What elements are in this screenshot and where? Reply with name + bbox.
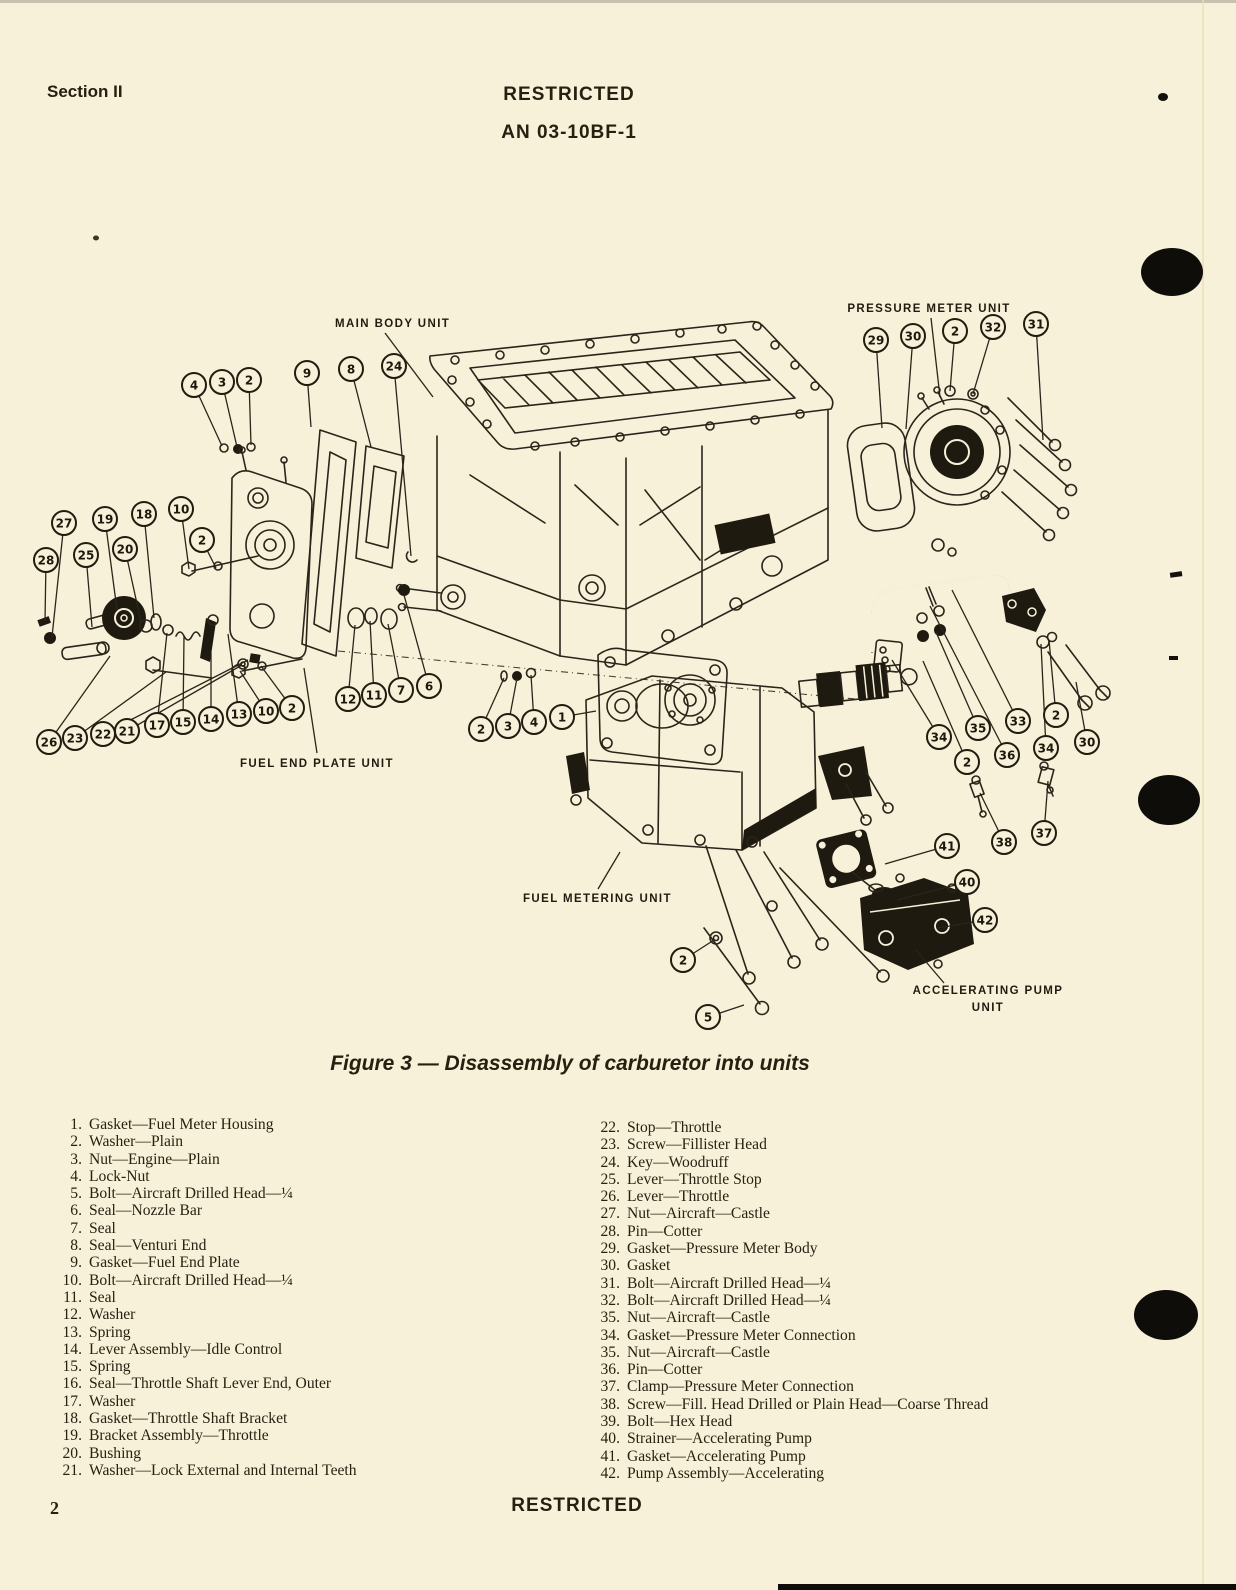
callout-number: 41: [939, 840, 956, 854]
callout-number: 42: [977, 914, 994, 928]
part-number: 36.: [566, 1361, 627, 1378]
callout-number: 2: [198, 534, 206, 548]
part-number: 4.: [45, 1168, 89, 1185]
callout-number: 33: [1010, 715, 1027, 729]
parts-list-item: 13.Spring: [45, 1324, 357, 1341]
part-number: 28.: [566, 1223, 627, 1240]
parts-list-item: 3.Nut—Engine—Plain: [45, 1151, 357, 1168]
callout-number: 5: [704, 1011, 712, 1025]
callout-2: 2: [1044, 640, 1068, 727]
page-number: 2: [50, 1498, 59, 1519]
callout-number: 27: [56, 517, 73, 531]
callout-number: 22: [95, 728, 112, 742]
parts-list-item: 25.Lever—Throttle Stop: [566, 1171, 988, 1188]
callout-number: 7: [397, 684, 405, 698]
callout-2: 2: [190, 528, 216, 568]
callout-14: 14: [199, 652, 223, 731]
callout-number: 21: [119, 725, 136, 739]
callout-32: 32: [973, 315, 1005, 394]
parts-list-item: 24.Key—Woodruff: [566, 1154, 988, 1171]
part-text: Gasket—Fuel End Plate: [89, 1254, 240, 1271]
parts-list-item: 28.Pin—Cotter: [566, 1223, 988, 1240]
callout-number: 30: [1079, 736, 1096, 750]
parts-list-item: 42.Pump Assembly—Accelerating: [566, 1465, 988, 1482]
parts-list-item: 8.Seal—Venturi End: [45, 1237, 357, 1254]
callout-number: 24: [386, 360, 403, 374]
callout-9: 9: [295, 361, 319, 427]
callout-number: 26: [41, 736, 58, 750]
parts-list-item: 17.Washer: [45, 1393, 357, 1410]
callout-number: 20: [117, 543, 134, 557]
part-number: 31.: [566, 1275, 627, 1292]
svg-text:FUEL METERING UNIT: FUEL METERING UNIT: [523, 893, 672, 905]
part-text: Spring: [89, 1324, 131, 1341]
part-number: 6.: [45, 1202, 89, 1219]
part-number: 35.: [566, 1309, 627, 1326]
parts-list-item: 6.Seal—Nozzle Bar: [45, 1202, 357, 1219]
restricted-banner-bottom: RESTRICTED: [511, 1495, 642, 1517]
parts-list-item: 5.Bolt—Aircraft Drilled Head—¼: [45, 1185, 357, 1202]
part-text: Washer: [89, 1393, 135, 1410]
part-number: 14.: [45, 1341, 89, 1358]
part-number: 26.: [566, 1188, 627, 1205]
callout-number: 19: [97, 513, 114, 527]
callout-number: 2: [245, 374, 253, 388]
part-text: Seal: [89, 1220, 116, 1237]
callout-number: 4: [190, 379, 198, 393]
parts-list-item: 7.Seal: [45, 1220, 357, 1237]
part-number: 15.: [45, 1358, 89, 1375]
parts-list-item: 30.Gasket: [566, 1257, 988, 1274]
part-text: Stop—Throttle: [627, 1119, 721, 1136]
callout-number: 10: [258, 705, 275, 719]
callout-number: 15: [175, 716, 192, 730]
part-text: Nut—Engine—Plain: [89, 1151, 220, 1168]
part-text: Bracket Assembly—Throttle: [89, 1427, 269, 1444]
part-number: 38.: [566, 1396, 627, 1413]
part-number: 9.: [45, 1254, 89, 1271]
callout-number: 12: [340, 693, 357, 707]
parts-list-item: 19.Bracket Assembly—Throttle: [45, 1427, 357, 1444]
parts-list-item: 41.Gasket—Accelerating Pump: [566, 1448, 988, 1465]
part-text: Washer—Lock External and Internal Teeth: [89, 1462, 357, 1479]
callout-11: 11: [362, 621, 386, 707]
callout-number: 32: [985, 321, 1002, 335]
parts-list-item: 36.Pin—Cotter: [566, 1361, 988, 1378]
callout-number: 2: [679, 954, 687, 968]
part-text: Washer—Plain: [89, 1133, 183, 1150]
part-number: 34.: [566, 1327, 627, 1344]
parts-list-item: 4.Lock-Nut: [45, 1168, 357, 1185]
callout-number: 38: [996, 836, 1013, 850]
part-number: 18.: [45, 1410, 89, 1427]
figure-caption: Figure 3 — Disassembly of carburetor int…: [330, 1052, 810, 1076]
callout-3: 3: [210, 370, 237, 447]
callout-8: 8: [339, 357, 371, 447]
part-text: Washer: [89, 1306, 135, 1323]
part-number: 8.: [45, 1237, 89, 1254]
part-number: 25.: [566, 1171, 627, 1188]
part-text: Seal—Nozzle Bar: [89, 1202, 202, 1219]
parts-list-item: 26.Lever—Throttle: [566, 1188, 988, 1205]
parts-list-item: 27.Nut—Aircraft—Castle: [566, 1205, 988, 1222]
callout-number: 29: [868, 334, 885, 348]
callout-number: 28: [38, 554, 55, 568]
parts-list-item: 29.Gasket—Pressure Meter Body: [566, 1240, 988, 1257]
binding-hole: [1138, 775, 1200, 825]
callout-number: 34: [931, 731, 948, 745]
part-text: Gasket—Pressure Meter Body: [627, 1240, 818, 1257]
parts-list-item: 20.Bushing: [45, 1445, 357, 1462]
part-text: Bolt—Aircraft Drilled Head—¼: [627, 1275, 831, 1292]
part-text: Gasket: [627, 1257, 670, 1274]
part-number: 41.: [566, 1448, 627, 1465]
fuel-metering-unit-art: [566, 648, 919, 1014]
callout-number: 13: [231, 708, 248, 722]
part-text: Gasket—Pressure Meter Connection: [627, 1327, 856, 1344]
callout-number: 40: [959, 876, 976, 890]
part-number: 17.: [45, 1393, 89, 1410]
part-number: 10.: [45, 1272, 89, 1289]
callout-number: 34: [1038, 742, 1055, 756]
part-number: 37.: [566, 1378, 627, 1395]
callout-2: 2: [237, 368, 261, 445]
callout-15: 15: [171, 636, 195, 734]
callout-number: 3: [218, 376, 226, 390]
svg-text:PRESSURE METER UNIT: PRESSURE METER UNIT: [847, 303, 1010, 315]
part-number: 3.: [45, 1151, 89, 1168]
part-number: 20.: [45, 1445, 89, 1462]
part-text: Pin—Cotter: [627, 1361, 702, 1378]
part-text: Nut—Aircraft—Castle: [627, 1205, 770, 1222]
part-number: 13.: [45, 1324, 89, 1341]
part-number: 35.: [566, 1344, 627, 1361]
callout-number: 11: [366, 689, 383, 703]
part-text: Nut—Aircraft—Castle: [627, 1309, 770, 1326]
callout-number: 25: [78, 549, 95, 563]
parts-list-item: 18.Gasket—Throttle Shaft Bracket: [45, 1410, 357, 1427]
parts-list-item: 21.Washer—Lock External and Internal Tee…: [45, 1462, 357, 1479]
part-text: Seal: [89, 1289, 116, 1306]
part-text: Lever—Throttle Stop: [627, 1171, 762, 1188]
callout-41: 41: [885, 834, 959, 864]
part-text: Bolt—Hex Head: [627, 1413, 732, 1430]
callout-number: 2: [1052, 709, 1060, 723]
part-text: Seal—Venturi End: [89, 1237, 206, 1254]
parts-list-item: 1.Gasket—Fuel Meter Housing: [45, 1116, 357, 1133]
callout-number: 4: [530, 716, 538, 730]
part-text: Clamp—Pressure Meter Connection: [627, 1378, 854, 1395]
part-text: Lever—Throttle: [627, 1188, 729, 1205]
binding-hole: [1134, 1290, 1198, 1340]
callout-number: 3: [504, 720, 512, 734]
part-number: 16.: [45, 1375, 89, 1392]
svg-text:FUEL END PLATE UNIT: FUEL END PLATE UNIT: [240, 758, 394, 770]
parts-list-item: 9.Gasket—Fuel End Plate: [45, 1254, 357, 1271]
part-text: Bolt—Aircraft Drilled Head—¼: [627, 1292, 831, 1309]
parts-list-item: 35.Nut—Aircraft—Castle: [566, 1344, 988, 1361]
part-text: Nut—Aircraft—Castle: [627, 1344, 770, 1361]
svg-text:ACCELERATING PUMP: ACCELERATING PUMP: [913, 985, 1064, 997]
callout-13: 13: [227, 634, 251, 726]
unit-label: FUEL METERING UNIT: [523, 852, 672, 905]
part-number: 27.: [566, 1205, 627, 1222]
parts-list-item: 40.Strainer—Accelerating Pump: [566, 1430, 988, 1447]
callout-number: 1: [558, 711, 566, 725]
callout-31: 31: [1024, 312, 1048, 440]
parts-list-left-column: 1.Gasket—Fuel Meter Housing2.Washer—Plai…: [45, 1116, 357, 1479]
part-text: Lever Assembly—Idle Control: [89, 1341, 282, 1358]
parts-list-item: 32.Bolt—Aircraft Drilled Head—¼: [566, 1292, 988, 1309]
parts-list-item: 11.Seal: [45, 1289, 357, 1306]
part-number: 30.: [566, 1257, 627, 1274]
part-number: 7.: [45, 1220, 89, 1237]
part-number: 21.: [45, 1462, 89, 1479]
callout-number: 6: [425, 680, 433, 694]
part-text: Key—Woodruff: [627, 1154, 729, 1171]
part-text: Gasket—Throttle Shaft Bracket: [89, 1410, 287, 1427]
part-number: 40.: [566, 1430, 627, 1447]
part-text: Gasket—Accelerating Pump: [627, 1448, 806, 1465]
part-text: Strainer—Accelerating Pump: [627, 1430, 812, 1447]
part-text: Lock-Nut: [89, 1168, 150, 1185]
callout-number: 9: [303, 367, 311, 381]
unit-label: UNIT: [972, 1002, 1004, 1014]
part-number: 39.: [566, 1413, 627, 1430]
part-number: 22.: [566, 1119, 627, 1136]
callout-4: 4: [522, 675, 546, 734]
part-text: Bushing: [89, 1445, 141, 1462]
diagram-art: [37, 322, 1110, 1015]
callout-number: 2: [477, 723, 485, 737]
callout-7: 7: [388, 624, 413, 702]
callout-12: 12: [336, 625, 360, 711]
callout-number: 8: [347, 363, 355, 377]
binding-hole: [1141, 248, 1203, 296]
callout-number: 2: [963, 756, 971, 770]
svg-text:UNIT: UNIT: [972, 1002, 1004, 1014]
parts-list-item: 23.Screw—Fillister Head: [566, 1136, 988, 1153]
part-number: 29.: [566, 1240, 627, 1257]
parts-list-item: 16.Seal—Throttle Shaft Lever End, Outer: [45, 1375, 357, 1392]
part-text: Screw—Fillister Head: [627, 1136, 767, 1153]
callout-number: 23: [67, 732, 84, 746]
svg-text:MAIN BODY UNIT: MAIN BODY UNIT: [335, 318, 450, 330]
callout-number: 31: [1028, 318, 1045, 332]
callout-38: 38: [980, 793, 1016, 854]
parts-list-item: 14.Lever Assembly—Idle Control: [45, 1341, 357, 1358]
callout-27: 27: [52, 511, 76, 637]
part-number: 42.: [566, 1465, 627, 1482]
callout-2: 2: [943, 319, 967, 391]
parts-list-item: 37.Clamp—Pressure Meter Connection: [566, 1378, 988, 1395]
parts-list-right-column: 22.Stop—Throttle23.Screw—Fillister Head2…: [566, 1119, 988, 1482]
callout-29: 29: [864, 328, 888, 428]
parts-list-item: 15.Spring: [45, 1358, 357, 1375]
part-text: Bolt—Aircraft Drilled Head—¼: [89, 1272, 293, 1289]
gasket-and-seals-art: [302, 430, 417, 656]
parts-list-item: 22.Stop—Throttle: [566, 1119, 988, 1136]
part-number: 23.: [566, 1136, 627, 1153]
part-number: 24.: [566, 1154, 627, 1171]
part-number: 12.: [45, 1306, 89, 1323]
parts-list-item: 38.Screw—Fill. Head Drilled or Plain Hea…: [566, 1396, 988, 1413]
part-number: 1.: [45, 1116, 89, 1133]
part-text: Bolt—Aircraft Drilled Head—¼: [89, 1185, 293, 1202]
part-number: 11.: [45, 1289, 89, 1306]
pressure-meter-connection-art: [872, 575, 1110, 817]
callout-number: 10: [173, 503, 190, 517]
part-number: 32.: [566, 1292, 627, 1309]
parts-list-item: 39.Bolt—Hex Head: [566, 1413, 988, 1430]
part-text: Gasket—Fuel Meter Housing: [89, 1116, 274, 1133]
callout-number: 2: [951, 325, 959, 339]
callout-10: 10: [169, 497, 193, 569]
parts-list-item: 10.Bolt—Aircraft Drilled Head—¼: [45, 1272, 357, 1289]
callout-number: 37: [1036, 827, 1053, 841]
callout-number: 2: [288, 702, 296, 716]
manual-page: { "header": { "section": "Section II", "…: [0, 0, 1236, 1590]
parts-list-item: 34.Gasket—Pressure Meter Connection: [566, 1327, 988, 1344]
callout-number: 18: [136, 508, 153, 522]
callout-number: 14: [203, 713, 220, 727]
part-text: Spring: [89, 1358, 131, 1375]
parts-list-item: 2.Washer—Plain: [45, 1133, 357, 1150]
part-text: Seal—Throttle Shaft Lever End, Outer: [89, 1375, 331, 1392]
part-text: Pump Assembly—Accelerating: [627, 1465, 824, 1482]
callout-1: 1: [550, 705, 596, 729]
callout-2: 2: [671, 940, 714, 972]
callout-number: 30: [905, 330, 922, 344]
parts-list-item: 12.Washer: [45, 1306, 357, 1323]
part-number: 5.: [45, 1185, 89, 1202]
callout-number: 35: [970, 722, 987, 736]
part-number: 2.: [45, 1133, 89, 1150]
parts-list-item: 35.Nut—Aircraft—Castle: [566, 1309, 988, 1326]
parts-list-item: 31.Bolt—Aircraft Drilled Head—¼: [566, 1275, 988, 1292]
callout-25: 25: [74, 543, 98, 627]
part-text: Screw—Fill. Head Drilled or Plain Head—C…: [627, 1396, 988, 1413]
part-number: 19.: [45, 1427, 89, 1444]
part-text: Pin—Cotter: [627, 1223, 702, 1240]
callout-number: 17: [149, 719, 166, 733]
callout-5: 5: [696, 1005, 744, 1029]
callout-number: 36: [999, 749, 1016, 763]
